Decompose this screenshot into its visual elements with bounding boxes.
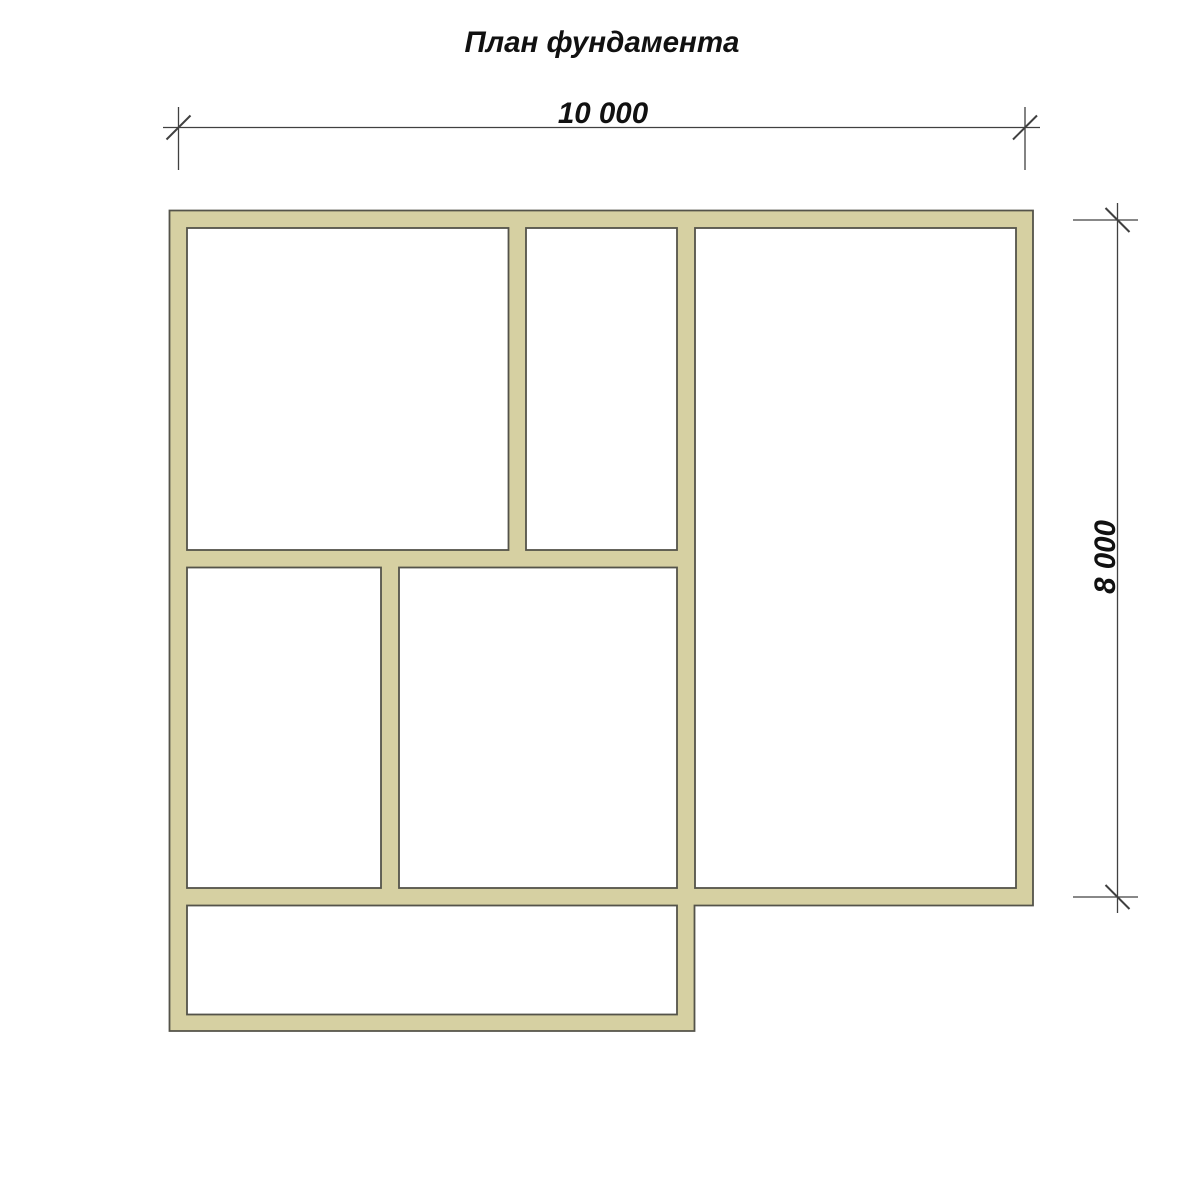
svg-text:План фундамента: План фундамента xyxy=(465,26,740,59)
svg-text:10 000: 10 000 xyxy=(558,97,649,130)
svg-text:8 000: 8 000 xyxy=(1089,519,1122,593)
